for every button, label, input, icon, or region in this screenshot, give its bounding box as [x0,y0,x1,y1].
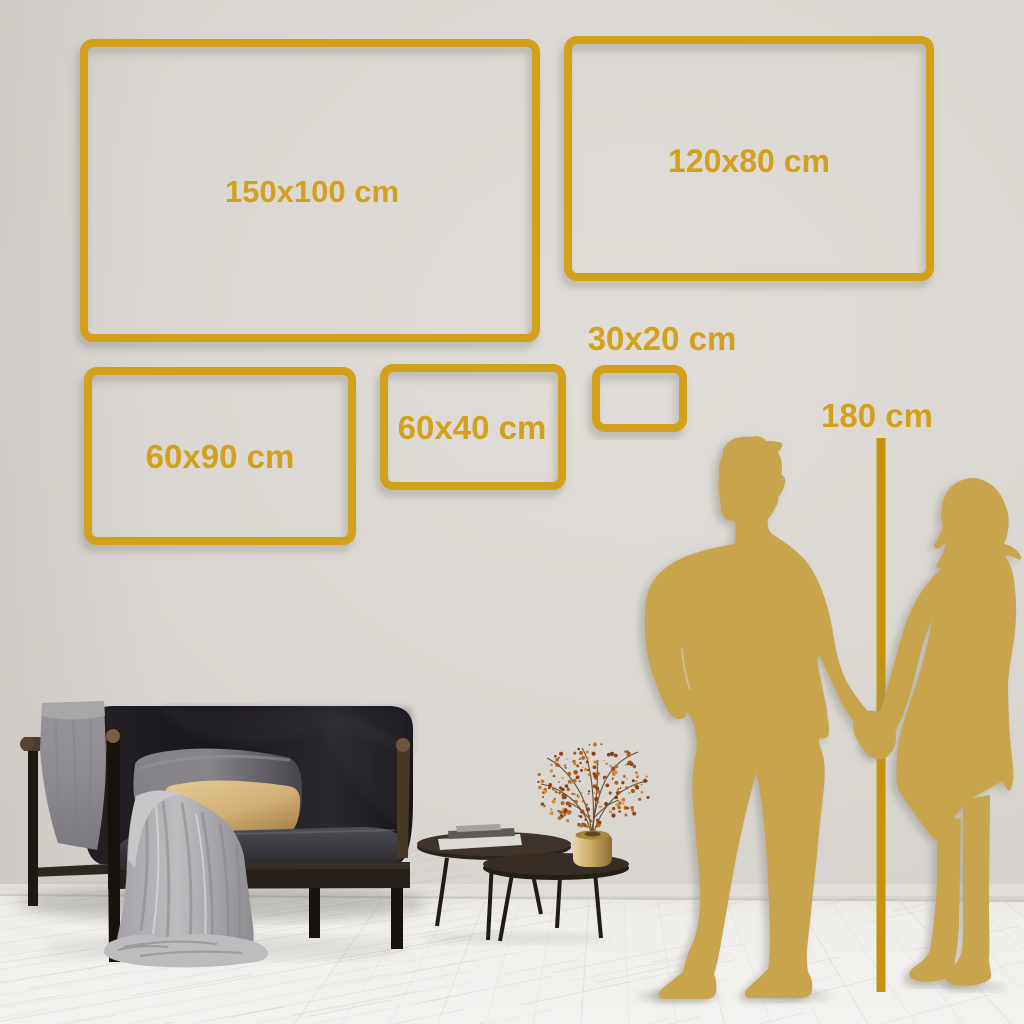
svg-text:120x80 cm: 120x80 cm [668,143,830,179]
svg-text:30x20 cm: 30x20 cm [588,320,737,357]
svg-text:60x40 cm: 60x40 cm [398,409,547,446]
svg-text:180 cm: 180 cm [821,397,933,434]
svg-text:150x100 cm: 150x100 cm [225,174,399,209]
svg-text:60x90 cm: 60x90 cm [146,438,295,475]
